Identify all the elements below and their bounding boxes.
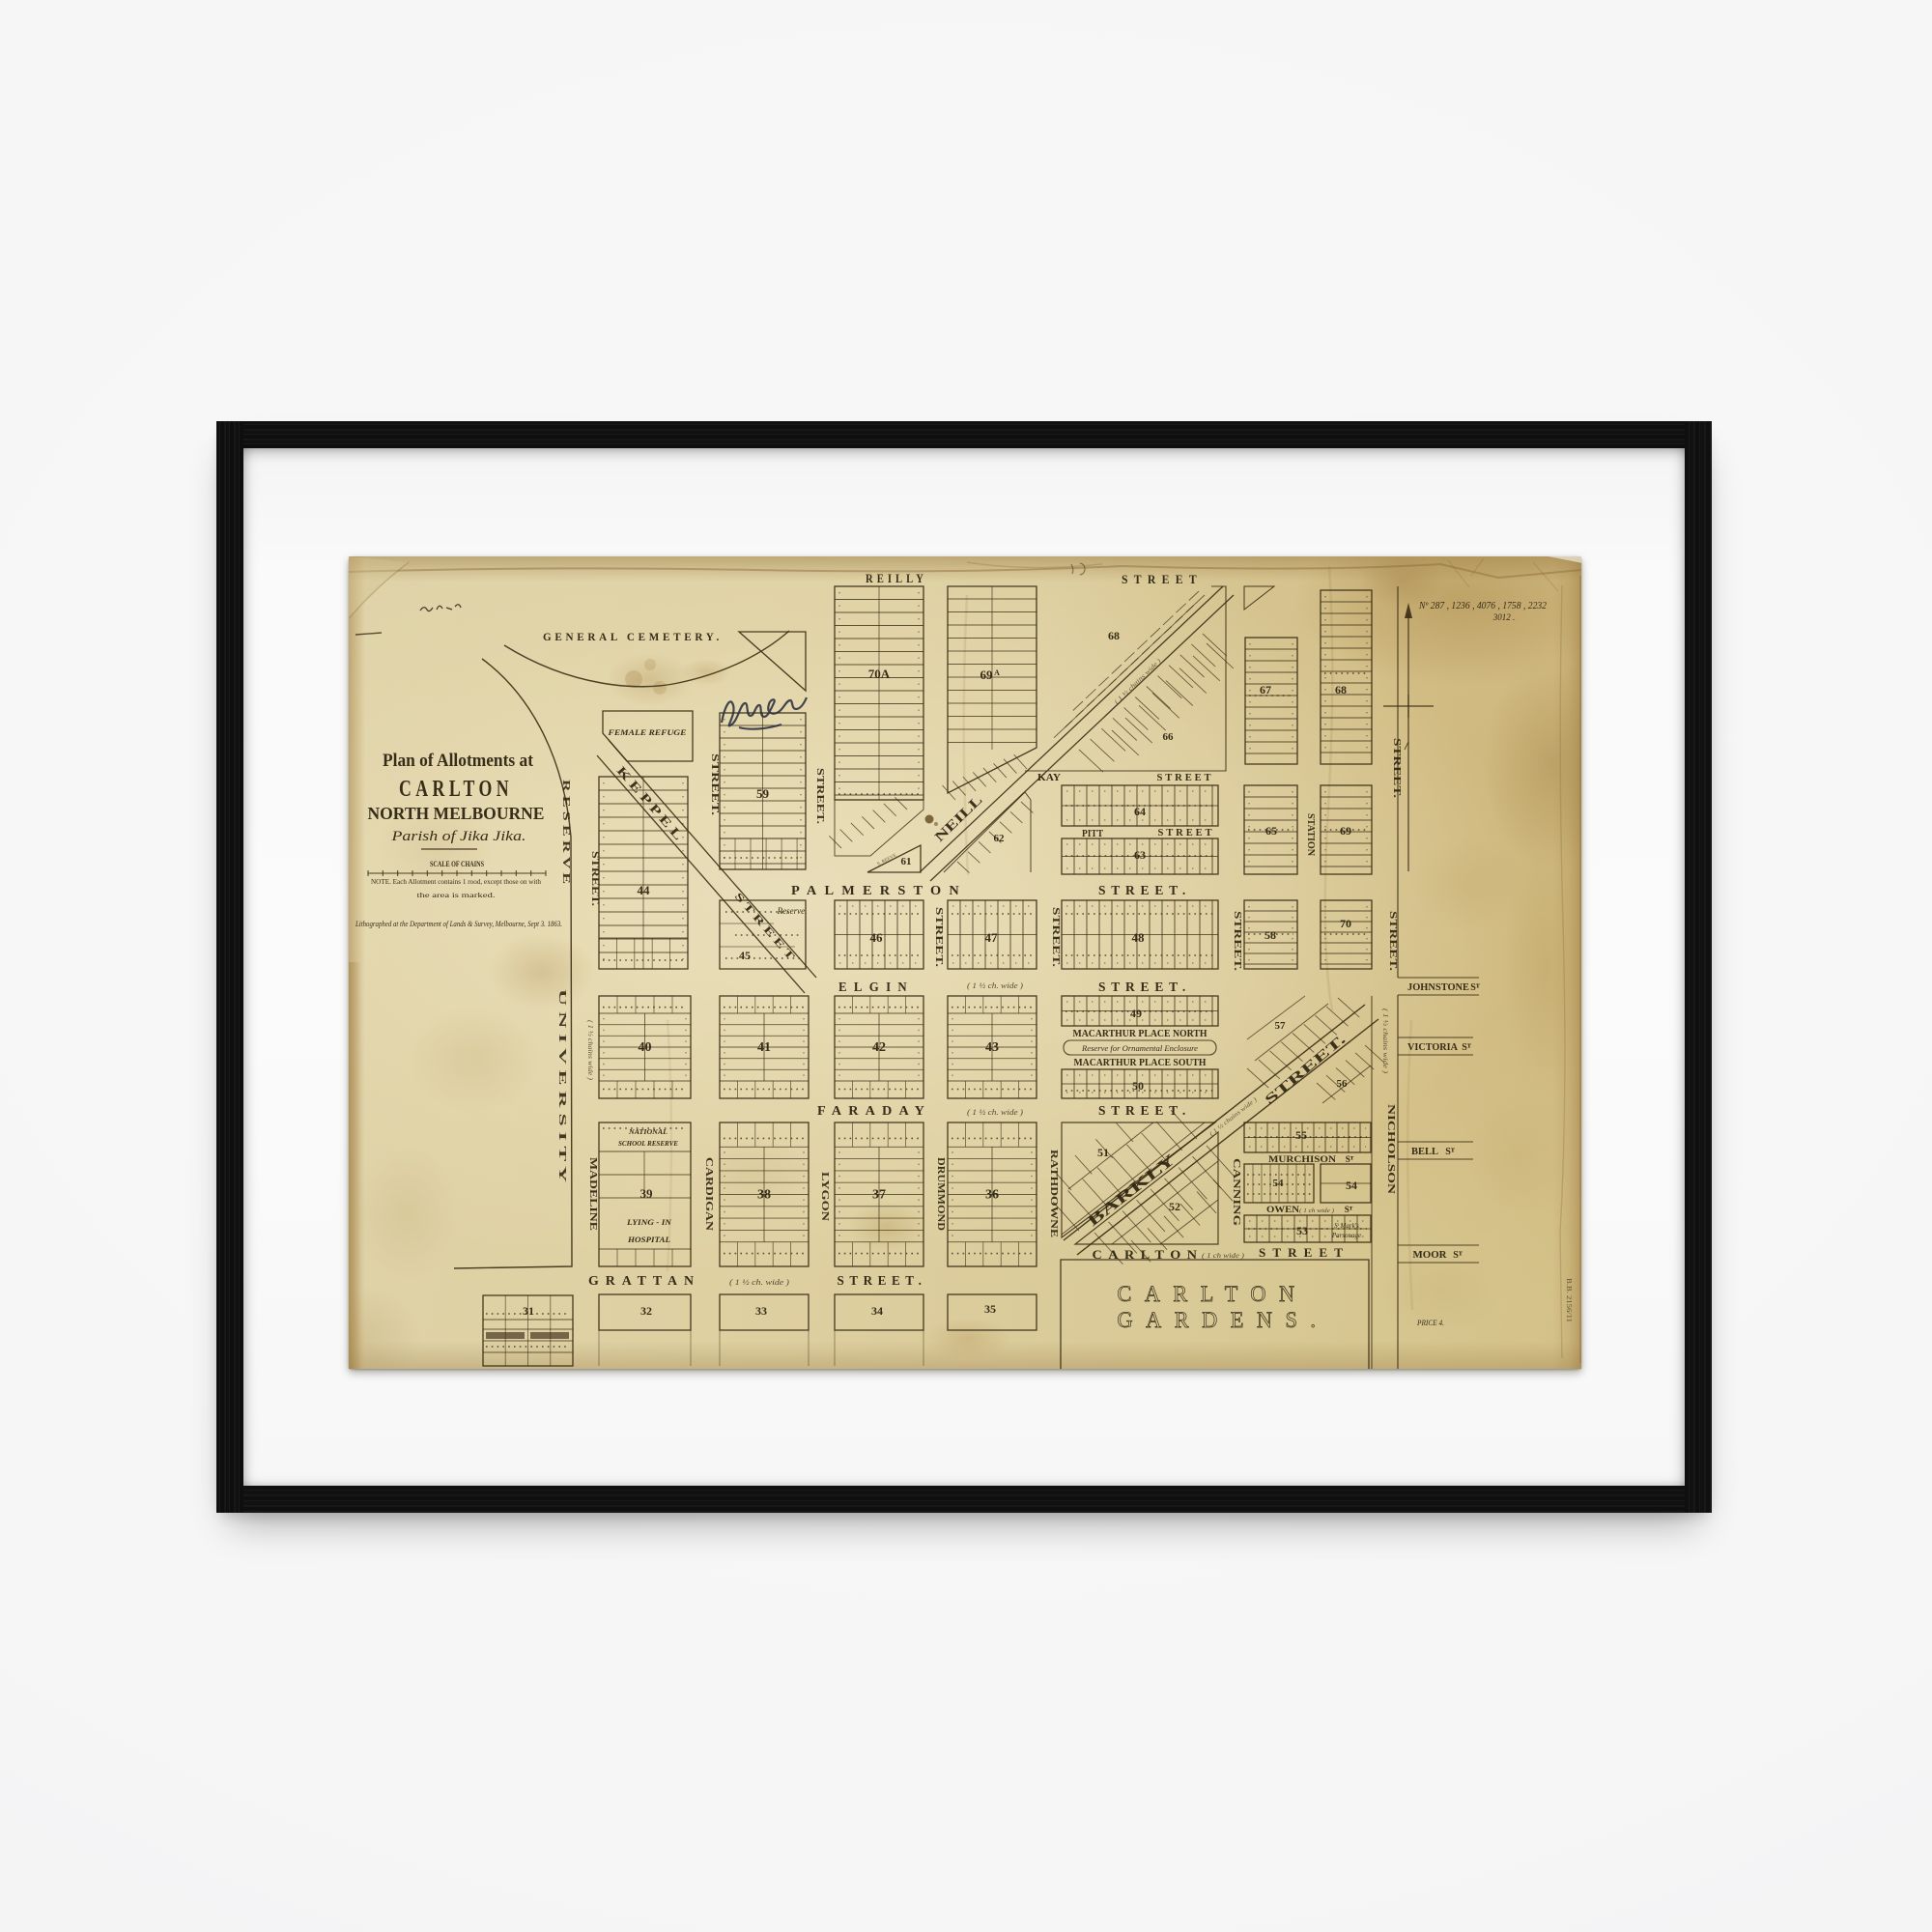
svg-text:34: 34 (871, 1304, 883, 1318)
svg-text:STREET.: STREET. (709, 753, 721, 815)
svg-text:65: 65 (1265, 824, 1277, 838)
svg-text:70: 70 (1340, 917, 1351, 930)
svg-text:( 1 ½ chains wide ): ( 1 ½ chains wide ) (586, 1020, 594, 1081)
svg-text:51: 51 (1097, 1146, 1109, 1159)
svg-text:59: 59 (756, 786, 770, 801)
svg-text:SCHOOL RESERVE: SCHOOL RESERVE (618, 1140, 678, 1148)
svg-text:PALMERSTON: PALMERSTON (791, 884, 967, 898)
svg-text:53: 53 (1296, 1224, 1308, 1237)
svg-text:46: 46 (870, 930, 884, 945)
svg-text:STREET.: STREET. (814, 768, 826, 824)
svg-text:SCALE OF CHAINS: SCALE OF CHAINS (430, 860, 484, 868)
svg-text:MACARTHUR PLACE SOUTH: MACARTHUR PLACE SOUTH (1074, 1058, 1207, 1068)
svg-text:ELGIN: ELGIN (838, 980, 914, 995)
svg-text:NICHOLSON: NICHOLSON (1385, 1104, 1397, 1194)
svg-text:RATHDOWNE: RATHDOWNE (1048, 1150, 1060, 1237)
svg-text:STREET.: STREET. (1098, 1104, 1191, 1119)
svg-text:VICTORIA: VICTORIA (1407, 1042, 1459, 1053)
svg-text:33: 33 (755, 1304, 767, 1318)
svg-text:35: 35 (984, 1302, 996, 1316)
svg-text:Sᵀ: Sᵀ (1453, 1250, 1463, 1261)
svg-text:LYING - IN: LYING - IN (626, 1218, 673, 1227)
svg-text:Sᵀ: Sᵀ (1345, 1205, 1353, 1214)
svg-text:48: 48 (1132, 930, 1146, 945)
svg-text:( 1 ch wide ): ( 1 ch wide ) (1202, 1252, 1245, 1260)
svg-text:STREET.: STREET. (933, 907, 945, 967)
svg-text:OWEN: OWEN (1266, 1205, 1300, 1214)
svg-text:54: 54 (1346, 1179, 1357, 1192)
svg-text:NATIONAL: NATIONAL (628, 1128, 668, 1136)
svg-text:57: 57 (1275, 1020, 1287, 1032)
svg-text:Parish of Jika Jika.: Parish of Jika Jika. (390, 829, 526, 844)
svg-text:STREET: STREET (1157, 772, 1214, 783)
svg-text:43: 43 (985, 1040, 999, 1055)
svg-text:DRUMMOND: DRUMMOND (935, 1157, 947, 1231)
svg-text:39: 39 (640, 1186, 654, 1201)
svg-text:( 1 ch wide ): ( 1 ch wide ) (1299, 1207, 1334, 1214)
svg-text:Sᵀ: Sᵀ (1346, 1154, 1354, 1164)
svg-text:38: 38 (757, 1188, 771, 1203)
svg-text:62: 62 (994, 833, 1006, 844)
svg-text:KAY: KAY (1037, 772, 1061, 783)
svg-text:69: 69 (1340, 824, 1351, 838)
svg-text:MOOR: MOOR (1413, 1250, 1448, 1261)
svg-text:3012 .: 3012 . (1492, 612, 1516, 622)
svg-text:STREET.: STREET. (838, 1274, 927, 1289)
svg-text:32: 32 (640, 1304, 652, 1318)
svg-text:( 1 ½ ch. wide ): ( 1 ½ ch. wide ) (967, 1108, 1023, 1117)
svg-text:STREET.: STREET. (1387, 911, 1399, 971)
svg-text:STREET: STREET (1259, 1245, 1350, 1260)
svg-text:68: 68 (1108, 629, 1120, 642)
svg-text:CARLTON: CARLTON (1118, 1282, 1308, 1306)
svg-text:R E S E R V E: R E S E R V E (560, 780, 571, 884)
svg-text:31: 31 (523, 1304, 534, 1318)
svg-text:FEMALE REFUGE: FEMALE REFUGE (607, 728, 686, 737)
svg-text:Nº 287 , 1236 , 4076 , 1758 ,: Nº 287 , 1236 , 4076 , 1758 , 2232 (1418, 601, 1547, 611)
svg-text:Lithographed at the Department: Lithographed at the Department of Lands … (355, 920, 562, 928)
svg-text:66: 66 (1163, 731, 1175, 743)
svg-text:54: 54 (1273, 1178, 1285, 1189)
svg-text:STREET.: STREET. (1098, 980, 1191, 995)
svg-text:PRICE 4.: PRICE 4. (1416, 1319, 1444, 1327)
svg-text:HOSPITAL: HOSPITAL (627, 1236, 670, 1244)
svg-text:37: 37 (872, 1188, 886, 1203)
svg-text:69: 69 (980, 668, 994, 682)
svg-text:MURCHISON: MURCHISON (1268, 1154, 1337, 1164)
svg-text:58: 58 (1264, 928, 1276, 942)
svg-text:63: 63 (1134, 848, 1146, 862)
svg-text:67: 67 (1260, 683, 1271, 696)
svg-text:CARDIGAN: CARDIGAN (703, 1157, 715, 1231)
svg-text:( 1 ½ ch. wide ): ( 1 ½ ch. wide ) (967, 981, 1023, 990)
svg-text:BELL: BELL (1411, 1147, 1438, 1157)
svg-text:STREET.: STREET. (1232, 911, 1243, 971)
svg-text:U N I V E R S I T Y: U N I V E R S I T Y (556, 989, 567, 1183)
svg-text:MADELINE: MADELINE (587, 1157, 599, 1231)
svg-text:42: 42 (872, 1040, 886, 1055)
svg-text:45: 45 (739, 949, 751, 962)
svg-text:70A: 70A (868, 667, 891, 681)
svg-text:GENERAL CEMETERY.: GENERAL CEMETERY. (543, 630, 723, 643)
svg-text:STREET.: STREET. (1391, 738, 1403, 798)
svg-text:JOHNSTONE: JOHNSTONE (1407, 982, 1469, 993)
svg-text:LYGON: LYGON (819, 1172, 831, 1221)
svg-text:STREET: STREET (1158, 827, 1215, 838)
svg-text:Sᵀ: Sᵀ (1462, 1042, 1471, 1053)
svg-text:52: 52 (1169, 1200, 1180, 1213)
svg-text:CARLTON: CARLTON (399, 777, 513, 802)
svg-text:REILLY: REILLY (866, 571, 927, 585)
svg-text:68: 68 (1335, 683, 1347, 696)
svg-text:64: 64 (1134, 805, 1146, 818)
svg-text:Parsonage: Parsonage (1331, 1232, 1361, 1239)
svg-text:49: 49 (1130, 1007, 1142, 1020)
svg-text:47: 47 (985, 930, 999, 945)
svg-text:MACARTHUR PLACE NORTH: MACARTHUR PLACE NORTH (1073, 1029, 1207, 1039)
svg-text:FARADAY: FARADAY (817, 1104, 931, 1119)
svg-text:( 1 ½ chains wide ): ( 1 ½ chains wide ) (1381, 1009, 1389, 1074)
svg-text:Plan of Allotments at: Plan of Allotments at (383, 751, 534, 771)
svg-text:36: 36 (985, 1188, 999, 1203)
svg-text:STREET.: STREET. (1098, 884, 1191, 898)
svg-text:GRATTAN: GRATTAN (588, 1274, 700, 1289)
svg-text:50: 50 (1132, 1079, 1144, 1093)
svg-text:Sᵀ: Sᵀ (1470, 982, 1480, 993)
svg-text:the area is marked.: the area is marked. (417, 891, 496, 899)
svg-text:( 1 ½ ch. wide ): ( 1 ½ ch. wide ) (729, 1278, 789, 1287)
svg-text:STREET.: STREET. (1050, 907, 1062, 967)
svg-text:61: 61 (901, 856, 912, 867)
svg-text:Sᵗ Mark's: Sᵗ Mark's (1334, 1222, 1359, 1230)
svg-text:NORTH MELBOURNE: NORTH MELBOURNE (368, 804, 545, 823)
svg-text:40: 40 (639, 1040, 652, 1055)
svg-text:A: A (994, 668, 1000, 677)
svg-text:55: 55 (1295, 1128, 1307, 1142)
svg-text:GARDENS.: GARDENS. (1118, 1308, 1329, 1332)
svg-text:Reserve.: Reserve. (777, 906, 808, 916)
svg-text:41: 41 (757, 1040, 771, 1055)
svg-text:Sᵀ: Sᵀ (1445, 1147, 1455, 1157)
svg-text:44: 44 (638, 883, 651, 897)
svg-text:56: 56 (1337, 1078, 1349, 1090)
svg-text:PITT: PITT (1082, 828, 1104, 839)
svg-text:B.B. 2156/11: B.B. 2156/11 (1565, 1278, 1573, 1323)
svg-text:STREET: STREET (1122, 572, 1203, 586)
svg-text:NOTE. Each Allotment contains: NOTE. Each Allotment contains 1 rood, ex… (371, 877, 541, 886)
svg-text:CANNING: CANNING (1231, 1158, 1242, 1227)
svg-text:Reserve for Ornamental Enclosu: Reserve for Ornamental Enclosure (1081, 1044, 1199, 1053)
svg-text:STATION: STATION (1305, 813, 1317, 856)
